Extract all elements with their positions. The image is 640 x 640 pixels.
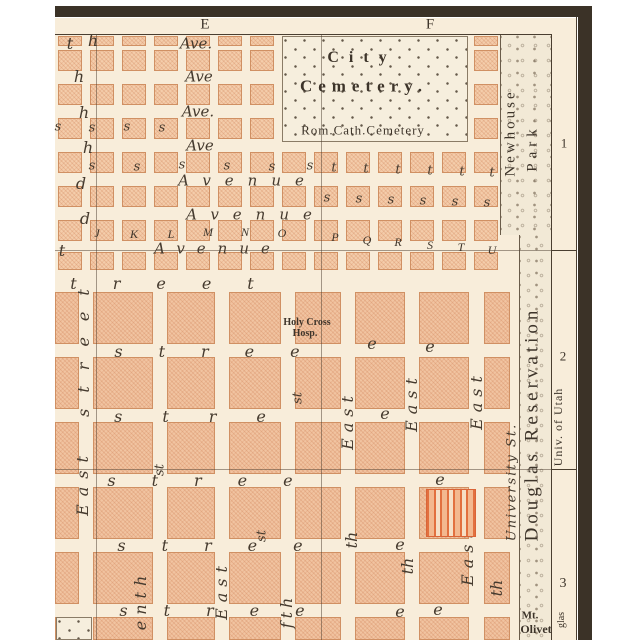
graticule-horizontal-1 xyxy=(55,250,551,251)
city-block xyxy=(93,357,153,409)
street-letter: R xyxy=(394,236,401,248)
city-block xyxy=(122,186,146,207)
city-block xyxy=(484,292,510,344)
city-block xyxy=(154,186,178,207)
neatline-right xyxy=(551,34,552,640)
street-letter: h xyxy=(79,105,89,121)
map-frame-right xyxy=(578,6,592,640)
street-letter: s xyxy=(55,121,62,134)
street-letter: East xyxy=(404,372,420,432)
city-block xyxy=(484,617,510,640)
mt-olivet-label-line1: Mt. xyxy=(522,611,539,622)
city-block xyxy=(229,617,281,640)
city-block xyxy=(93,422,153,474)
street-letter: e xyxy=(395,537,404,553)
street-letter: stree xyxy=(107,473,328,489)
street-letter: th xyxy=(489,580,505,597)
city-block xyxy=(474,36,498,46)
street-letter: e xyxy=(367,336,376,352)
street-letter: s xyxy=(159,122,166,135)
grid-row-label-1: 1 xyxy=(561,137,568,150)
city-block xyxy=(154,84,178,105)
city-block xyxy=(218,118,242,139)
city-block xyxy=(218,36,242,46)
greenhouse-block xyxy=(426,489,476,537)
city-block xyxy=(442,220,466,241)
city-block xyxy=(484,357,510,409)
street-letter: Ave xyxy=(186,139,214,154)
street-letter: stre xyxy=(114,409,306,425)
university-st-label: University St. xyxy=(506,423,519,542)
street-letter: t xyxy=(395,164,400,177)
city-block xyxy=(419,422,469,474)
city-block xyxy=(122,252,146,270)
city-block xyxy=(90,186,114,207)
city-block xyxy=(167,617,215,640)
street-letter: s xyxy=(179,159,186,172)
street-letter: s xyxy=(307,160,314,173)
city-block xyxy=(229,357,281,409)
city-block xyxy=(355,292,405,344)
map-frame-top xyxy=(55,6,592,17)
street-letter: d xyxy=(76,176,86,192)
city-block xyxy=(229,292,281,344)
city-block xyxy=(355,487,405,539)
street-letter: s xyxy=(420,195,427,208)
street-letter: street xyxy=(76,273,92,417)
street-letter: t xyxy=(331,162,336,175)
city-block xyxy=(295,617,341,640)
holy-cross-hosp-label-line1: Holy Cross xyxy=(283,318,330,328)
city-block xyxy=(154,36,178,46)
city-block xyxy=(93,487,153,539)
street-letter: stree xyxy=(117,538,338,554)
street-letter: h xyxy=(74,69,84,85)
city-block xyxy=(122,36,146,46)
city-block xyxy=(93,292,153,344)
city-block xyxy=(154,50,178,71)
rom-cath-cemetery-label: Rom.Cath.Cemetery xyxy=(301,124,425,137)
street-letter: P xyxy=(331,231,338,243)
street-letter: s xyxy=(269,161,276,174)
city-block xyxy=(122,84,146,105)
street-letter: h xyxy=(83,140,93,156)
city-cemetery-label-line1: City xyxy=(327,50,396,66)
city-block xyxy=(442,252,466,270)
city-block xyxy=(218,50,242,71)
city-block xyxy=(282,252,306,270)
street-letter: s xyxy=(324,192,331,205)
city-block xyxy=(474,220,498,241)
street-letter: East xyxy=(214,560,230,620)
street-letter: Avenue xyxy=(178,174,318,189)
street-letter: Avenue xyxy=(154,242,282,257)
city-block xyxy=(378,252,402,270)
street-letter: M xyxy=(203,226,213,238)
univ-of-utah-label: Univ. of Utah xyxy=(552,388,564,467)
city-block xyxy=(474,84,498,105)
map-screenshot: thhhhddtAve.AveAve.AveAvenueAvenueAvenue… xyxy=(0,0,640,640)
city-block xyxy=(295,552,341,604)
street-letter: t xyxy=(67,36,73,52)
newhouse-park-label-line2: Park xyxy=(526,124,541,172)
margin-tick-1 xyxy=(551,250,577,251)
city-block xyxy=(250,118,274,139)
street-letter: Q xyxy=(363,234,372,246)
margin-fragment-label: glas xyxy=(557,612,567,628)
street-letter: s xyxy=(89,160,96,173)
city-block xyxy=(355,422,405,474)
city-block xyxy=(346,252,370,270)
city-block xyxy=(90,84,114,105)
street-letter: treet xyxy=(70,276,289,292)
city-block xyxy=(167,552,215,604)
street-letter: d xyxy=(80,211,90,227)
city-block xyxy=(474,50,498,71)
mt-olivet-label-line2: Olivet xyxy=(520,623,551,635)
street-letter: th xyxy=(400,558,416,575)
city-block xyxy=(154,118,178,139)
city-block xyxy=(250,50,274,71)
street-letter: L xyxy=(168,228,175,240)
street-letter: Ave xyxy=(185,70,213,85)
graticule-horizontal-2 xyxy=(55,469,551,470)
street-letter: s xyxy=(134,161,141,174)
street-letter: East xyxy=(340,390,356,450)
city-block xyxy=(167,487,215,539)
grid-row-label-3: 3 xyxy=(560,577,567,591)
city-cemetery-label-line2: Cemetery. xyxy=(300,78,428,95)
street-letter: th xyxy=(344,532,360,549)
street-letter: t xyxy=(459,166,464,179)
city-block xyxy=(474,118,498,139)
street-letter: t xyxy=(363,163,368,176)
street-letter: T xyxy=(458,241,465,253)
grid-col-label-e: E xyxy=(200,18,209,33)
city-block xyxy=(58,220,82,241)
street-letter: s xyxy=(356,193,363,206)
street-letter: s xyxy=(484,197,491,210)
city-block xyxy=(295,487,341,539)
street-letter: Ave. xyxy=(180,37,212,52)
street-letter: e xyxy=(425,339,434,355)
street-letter: K xyxy=(130,228,138,240)
city-block xyxy=(295,422,341,474)
city-block xyxy=(167,357,215,409)
margin-rule-right xyxy=(576,17,577,640)
street-letter: enth xyxy=(133,570,149,631)
small-park-block xyxy=(56,617,92,640)
street-letter: N xyxy=(241,226,249,238)
street-letter: e xyxy=(433,602,442,618)
city-block xyxy=(229,552,281,604)
city-block xyxy=(410,252,434,270)
street-letter: st xyxy=(256,530,269,542)
street-letter: s xyxy=(124,121,131,134)
neatline-top xyxy=(55,34,552,35)
street-letter: e xyxy=(435,472,444,488)
holy-cross-hosp-label-line2: Hosp. xyxy=(293,329,318,339)
city-block xyxy=(154,152,178,173)
grid-row-label-2: 2 xyxy=(560,350,567,363)
city-block xyxy=(122,50,146,71)
street-letter: st xyxy=(154,464,167,476)
street-letter: O xyxy=(278,227,287,239)
city-block xyxy=(90,50,114,71)
city-block xyxy=(58,152,82,173)
city-block xyxy=(419,357,469,409)
street-letter: t xyxy=(427,165,432,178)
city-block xyxy=(58,84,82,105)
street-letter: fth xyxy=(279,594,295,629)
margin-tick-2 xyxy=(551,469,577,470)
city-block xyxy=(167,292,215,344)
street-letter: s xyxy=(224,160,231,173)
city-block xyxy=(419,617,469,640)
street-letter: Avenue xyxy=(186,208,326,223)
graticule-vertical-1 xyxy=(96,34,97,640)
city-block xyxy=(186,152,210,173)
city-block xyxy=(90,252,114,270)
street-letter: t xyxy=(59,243,65,259)
street-letter: e xyxy=(395,604,404,620)
street-letter: s xyxy=(452,196,459,209)
city-block xyxy=(250,84,274,105)
city-block xyxy=(167,422,215,474)
douglas-reservation-label: Douglas Reservation xyxy=(523,307,542,542)
city-block xyxy=(355,357,405,409)
city-block xyxy=(314,252,338,270)
street-letter: e xyxy=(380,406,389,422)
street-letter: stree xyxy=(114,344,335,360)
street-letter: s xyxy=(89,122,96,135)
city-block xyxy=(218,84,242,105)
street-letter: East xyxy=(469,370,485,430)
street-letter: t xyxy=(489,167,494,180)
city-block xyxy=(282,152,306,173)
city-block xyxy=(55,552,79,604)
city-block xyxy=(250,36,274,46)
newhouse-park-label-line1: Newhouse xyxy=(504,89,519,176)
street-letter: s xyxy=(388,194,395,207)
grid-col-label-f: F xyxy=(426,18,434,33)
city-block xyxy=(229,422,281,474)
street-letter: East xyxy=(75,448,91,516)
street-letter: st xyxy=(292,392,305,404)
street-letter: Ave. xyxy=(182,105,214,120)
